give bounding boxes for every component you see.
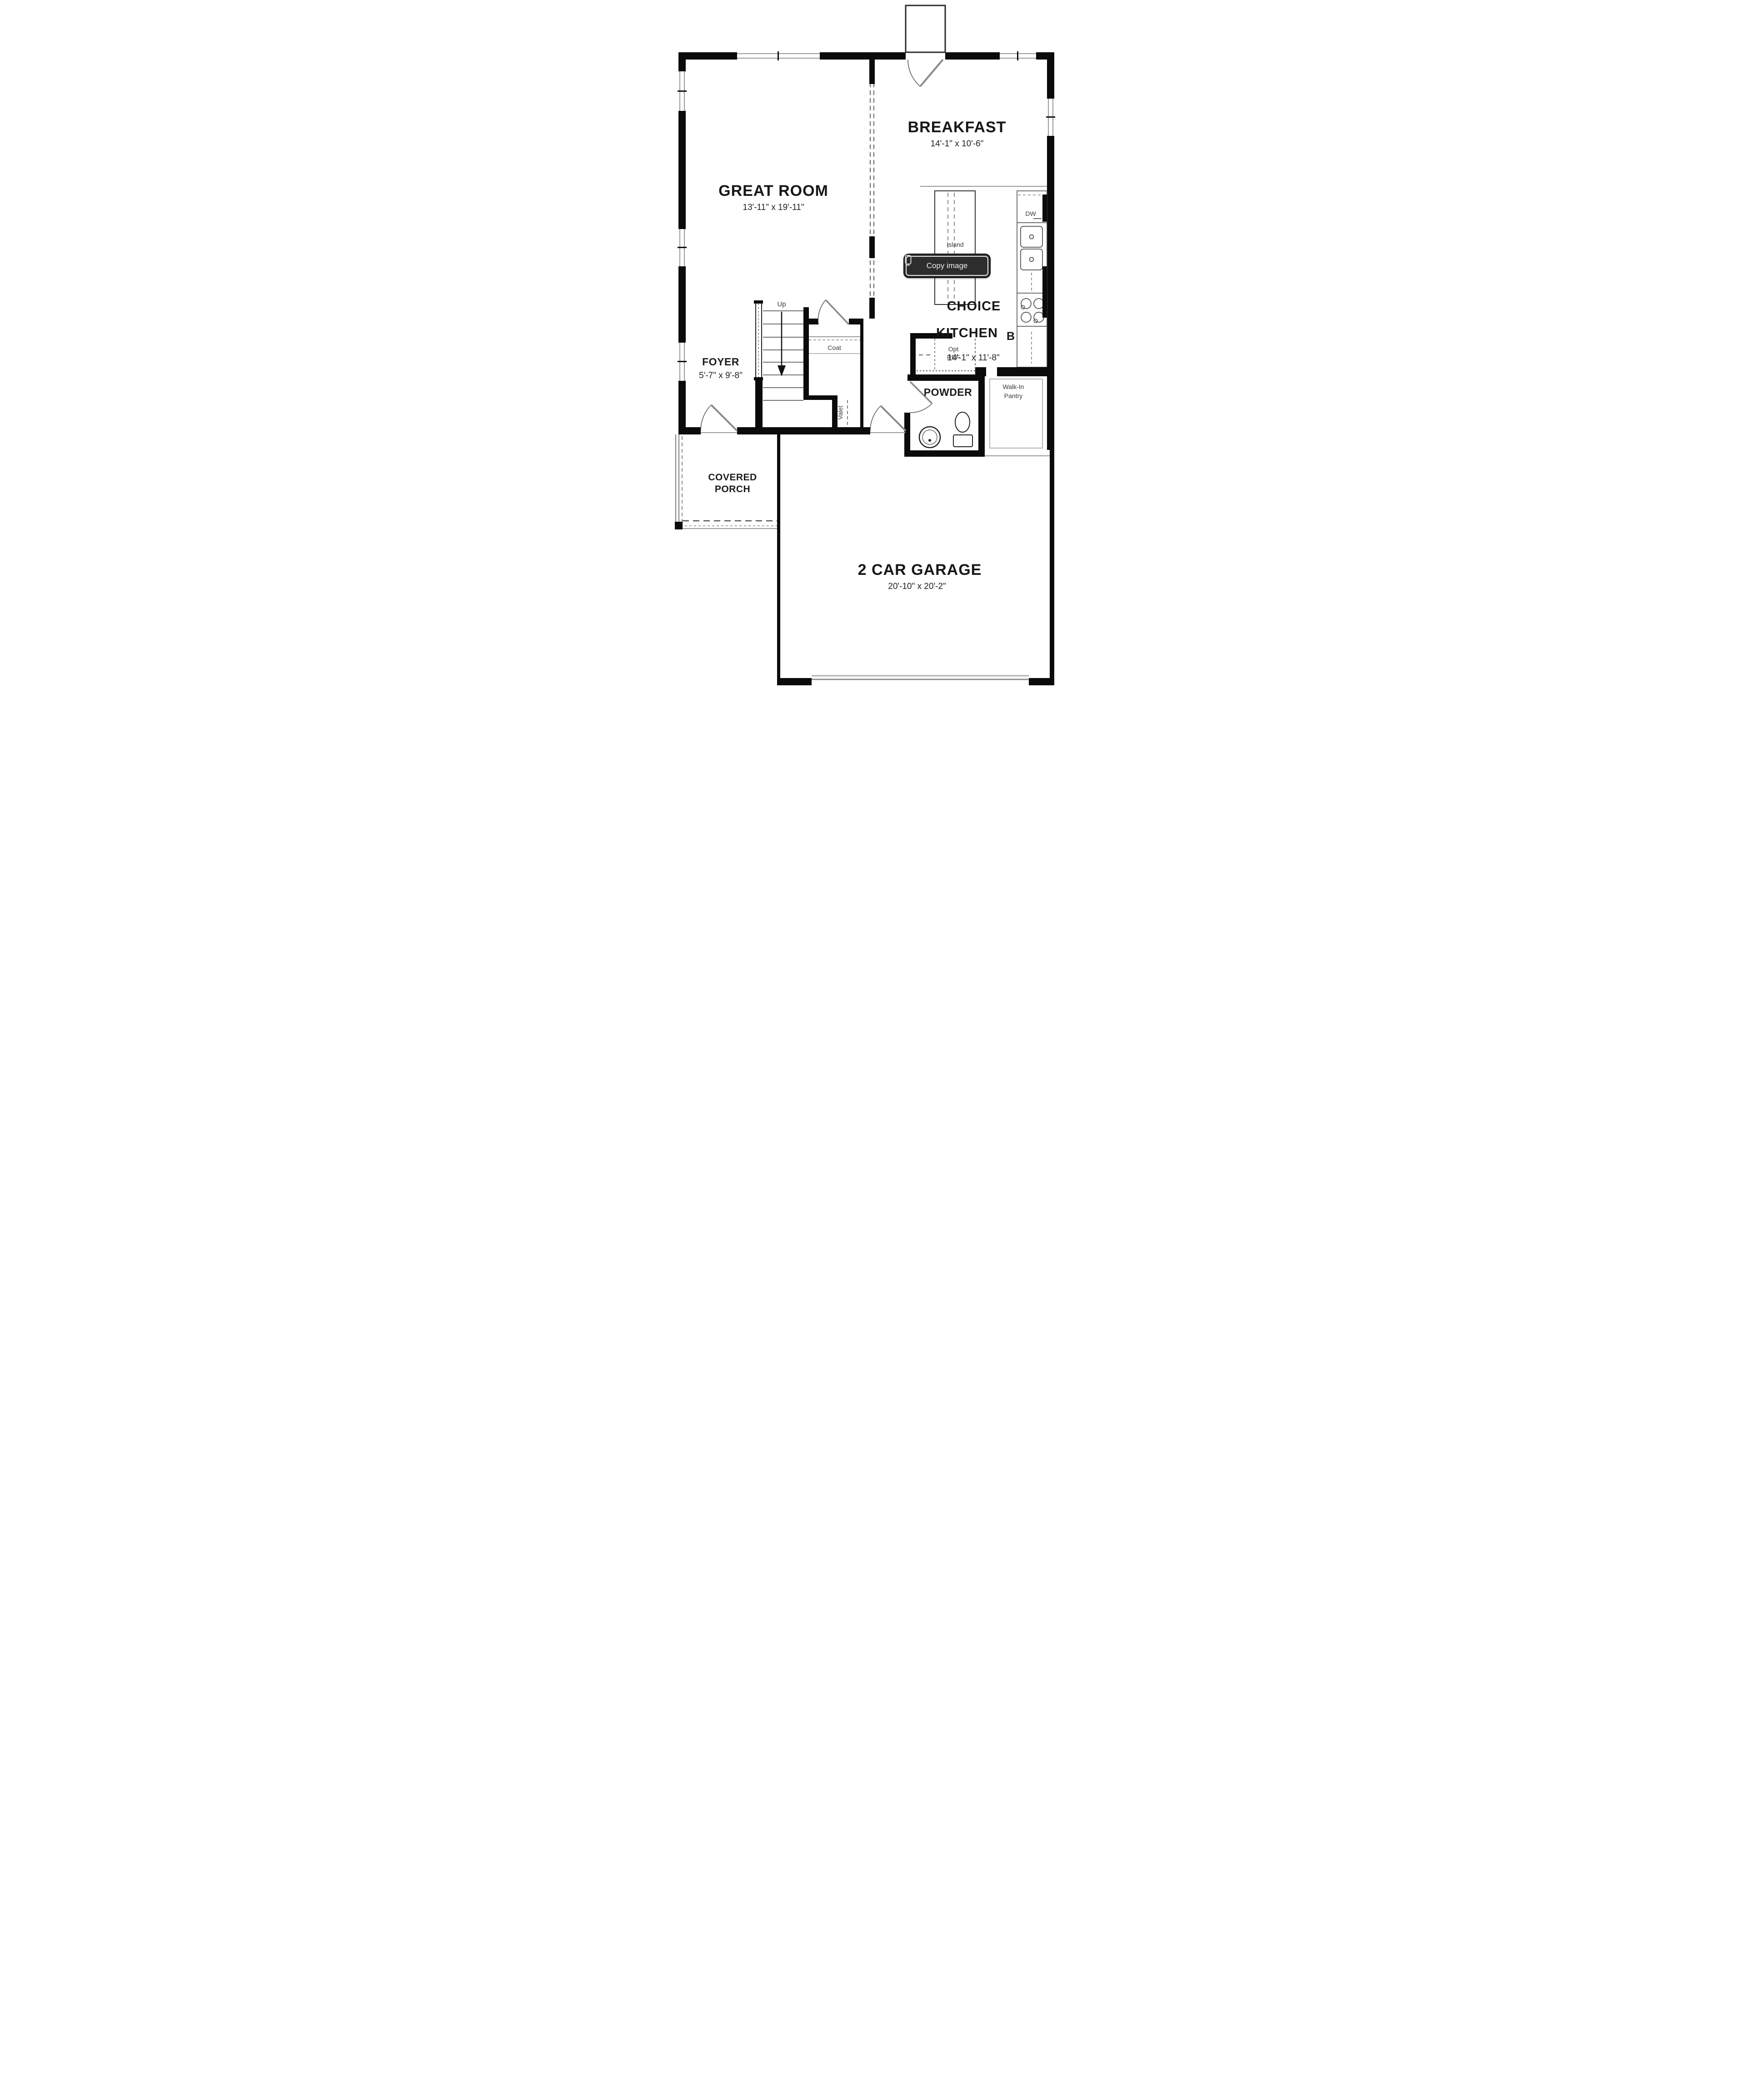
label-breakfast-dims: 14'-1" x 10'-6" — [931, 139, 984, 149]
label-opt-ref-line1: Opt — [948, 345, 959, 353]
label-opt-ref-line2: REF — [947, 354, 960, 361]
toilet — [953, 412, 972, 447]
garage-entry-door — [870, 406, 906, 433]
door-arc — [701, 405, 711, 431]
door-arc — [818, 300, 826, 324]
door-leaf — [920, 60, 943, 86]
label-foyer: FOYER — [702, 356, 739, 368]
label-pantry-line1: Walk-In — [1003, 383, 1024, 390]
label-porch-line2: PORCH — [715, 484, 750, 494]
outer-walls — [678, 52, 1054, 450]
walk-in-pantry-shelves — [985, 379, 1050, 456]
door-arc — [908, 60, 920, 86]
stair-treads — [763, 311, 803, 400]
windows — [678, 51, 1055, 381]
garage-walls — [777, 434, 1054, 685]
label-coat: Coat — [828, 344, 841, 351]
label-pantry-line2: Pantry — [1004, 392, 1022, 399]
label-great-room-dims: 13'-11" x 19'-11" — [743, 203, 804, 212]
window-right-breakfast — [1046, 99, 1055, 136]
door-leaf — [711, 405, 737, 431]
label-powder: POWDER — [924, 386, 972, 398]
label-great-room: GREAT ROOM — [718, 182, 828, 200]
stairs — [754, 300, 809, 428]
label-porch-line1: COVERED — [708, 472, 757, 483]
door-leaf — [881, 406, 906, 431]
label-kitchen-line2: KITCHEN — [936, 326, 998, 340]
window-left-3 — [678, 343, 687, 381]
screenshot-canvas: GREAT ROOM 13'-11" x 19'-11" BREAKFAST 1… — [582, 0, 1163, 700]
room-divider-dashed — [869, 60, 875, 319]
floor-plan-drawing: GREAT ROOM 13'-11" x 19'-11" BREAKFAST 1… — [582, 0, 1163, 700]
label-kitchen-variant: B — [1007, 330, 1015, 343]
copy-image-label: Copy image — [927, 261, 968, 270]
label-garage: 2 CAR GARAGE — [858, 561, 982, 579]
label-dishwasher: DW — [1025, 210, 1036, 217]
window-left-2 — [678, 229, 687, 266]
door-arc — [910, 404, 932, 413]
label-kitchen-line1: CHOICE — [947, 299, 1001, 314]
door-leaf — [826, 300, 849, 324]
window-top-great-room — [737, 51, 820, 60]
entry-bump — [906, 5, 945, 86]
label-breakfast: BREAKFAST — [908, 119, 1007, 136]
label-garage-dims: 20'-10" x 20'-2" — [888, 582, 946, 591]
label-island: Island — [947, 241, 963, 248]
copy-image-button[interactable]: Copy image — [904, 254, 990, 277]
label-valet: Valet — [837, 405, 844, 419]
counter-run — [1017, 191, 1047, 367]
copy-image-icon — [904, 254, 912, 266]
window-top-breakfast — [1000, 51, 1036, 60]
window-left-1 — [678, 71, 687, 111]
front-door — [701, 405, 737, 433]
label-stairs-up: Up — [777, 300, 786, 308]
label-foyer-dims: 5'-7" x 9'-8" — [699, 371, 743, 380]
door-arc — [870, 406, 881, 431]
powder-sink — [919, 427, 940, 448]
